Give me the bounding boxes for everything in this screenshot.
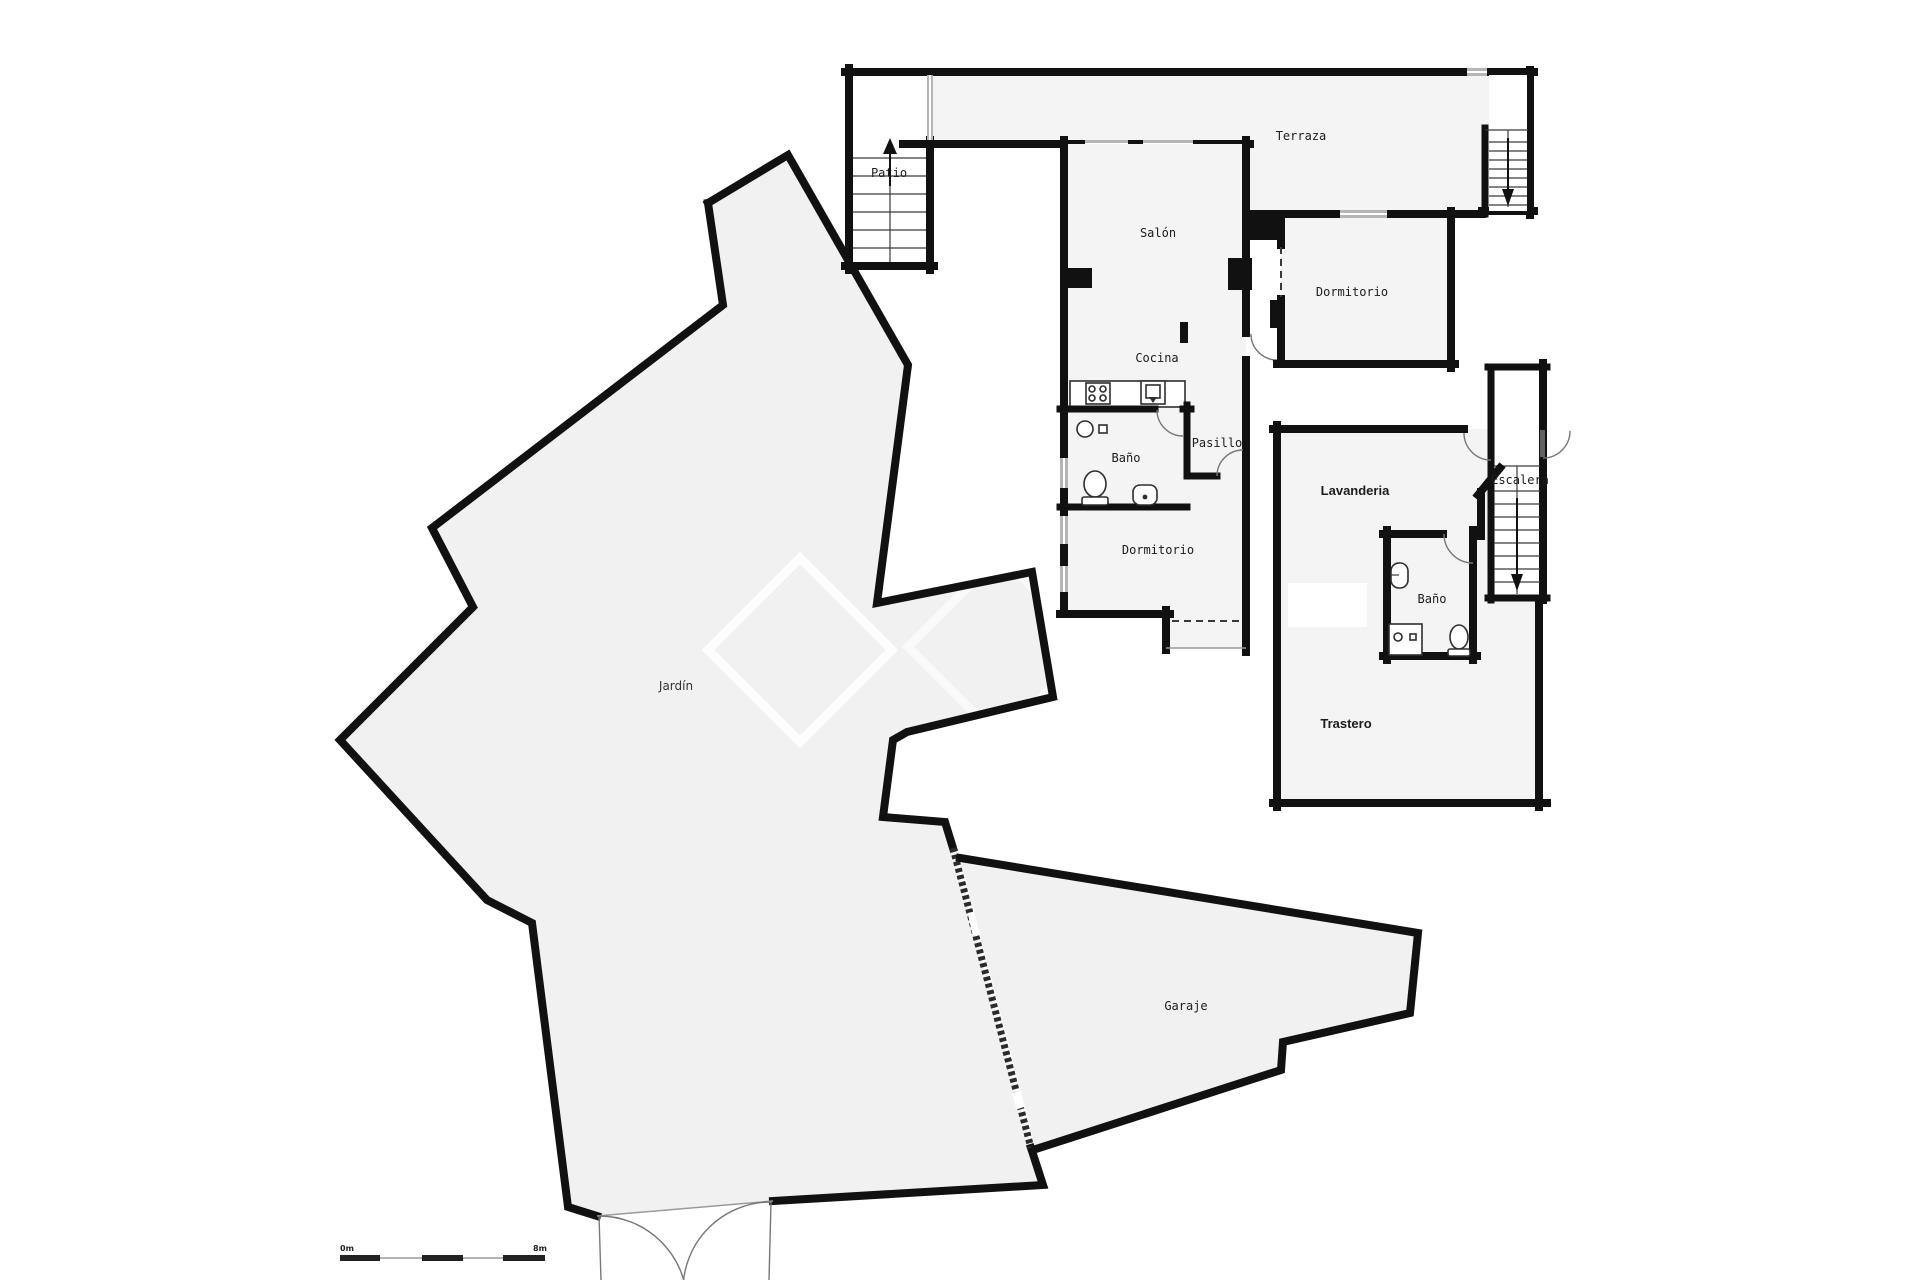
salon-cocina-stub <box>1180 322 1188 343</box>
exterior-door-leaf <box>1540 430 1545 457</box>
main-apartment-block: Salón Cocina Baño Pasillo Dormitorio <box>1060 140 1290 652</box>
room-label-garaje: Garaje <box>1164 999 1207 1013</box>
salon-left-pillar <box>1065 268 1092 288</box>
jardin-area: Jardín <box>340 155 1092 1280</box>
room-label-terraza: Terraza <box>1276 129 1327 143</box>
room-label-bano-main: Baño <box>1112 451 1141 465</box>
floor-plan-canvas: Jardín Garaje <box>0 0 1920 1280</box>
dormitorio-top-block: Dormitorio <box>1277 211 1455 368</box>
room-label-pasillo: Pasillo <box>1192 436 1243 450</box>
fence-gate-lower <box>1016 1092 1021 1108</box>
room-label-jardin: Jardín <box>658 679 693 693</box>
white-patch <box>1288 583 1367 627</box>
room-label-escalera: Escalera <box>1491 473 1549 487</box>
scale-end-label: 8m <box>533 1244 547 1253</box>
scale-start-label: 0m <box>340 1244 354 1253</box>
toilet-icon <box>1082 471 1108 505</box>
floor-plan-svg: Jardín Garaje <box>0 0 1920 1280</box>
room-label-salon: Salón <box>1140 226 1176 240</box>
garaje-area: Garaje <box>960 858 1418 1149</box>
scale-bar: 0m 8m <box>340 1244 547 1261</box>
room-label-bano-upper: Baño <box>1418 592 1447 606</box>
dormitorio-top-door-arc <box>1251 334 1277 360</box>
toilet-upper-icon <box>1448 625 1470 656</box>
salon-right-pillar <box>1228 258 1252 290</box>
bidet-icon <box>1133 485 1157 505</box>
kitchen-counter <box>1070 381 1185 407</box>
wall-sink-icon <box>1391 563 1408 588</box>
room-label-patio: Patio <box>871 166 907 180</box>
exterior-stair-door-arc <box>1543 431 1570 458</box>
room-label-cocina: Cocina <box>1135 351 1178 365</box>
stove-icon <box>1086 383 1110 404</box>
sink-icon <box>1141 381 1165 404</box>
shower-tray-icon <box>1389 624 1422 655</box>
terrace-stairs <box>1485 75 1528 214</box>
service-block: Lavanderia Escalera Baño Trastero <box>1273 363 1570 807</box>
room-label-lavanderia: Lavanderia <box>1321 483 1390 498</box>
room-label-dormitorio-mid: Dormitorio <box>1122 543 1194 557</box>
room-label-dormitorio-top: Dormitorio <box>1316 285 1388 299</box>
room-label-trastero: Trastero <box>1320 716 1371 731</box>
